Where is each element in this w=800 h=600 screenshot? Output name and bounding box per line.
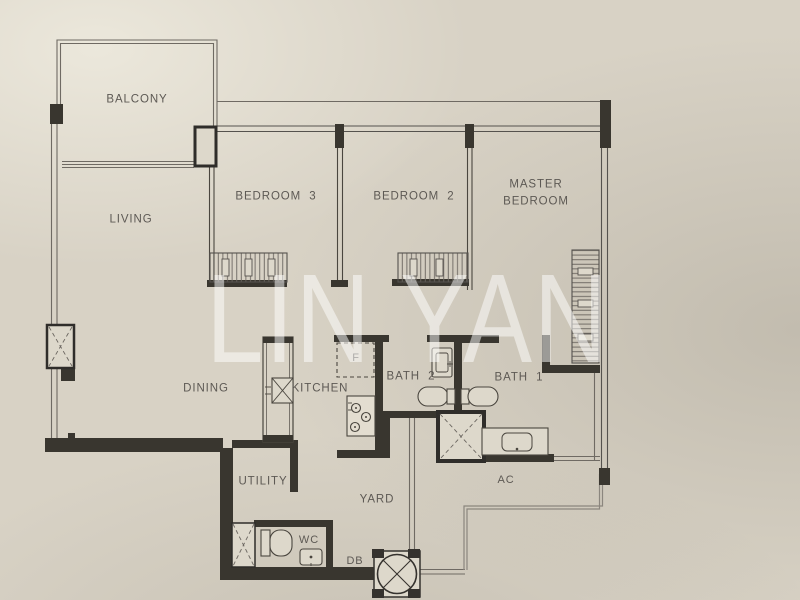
- db-column: [372, 549, 420, 598]
- room-label-kitchen: KITCHEN: [292, 381, 349, 398]
- floor-plan-drawing: [0, 0, 800, 600]
- room-label-balcony: BALCONY: [106, 92, 167, 109]
- thin-walls-and-windows: [52, 40, 608, 574]
- bath2-toilet: [418, 387, 455, 406]
- room-label-bedroom2: BEDROOM 2: [373, 189, 454, 206]
- bath1-toilet: [461, 387, 498, 406]
- wc-toilet: [261, 530, 292, 556]
- room-label-db: DB: [346, 554, 363, 570]
- service-shaft-wc: [232, 523, 255, 567]
- room-label-living: LIVING: [109, 212, 152, 229]
- room-label-utility: UTILITY: [238, 474, 287, 491]
- room-label-yard: YARD: [360, 492, 395, 509]
- room-label-ac: AC: [497, 473, 514, 489]
- room-label-bath1: BATH 1: [495, 370, 544, 387]
- wc-sink: [300, 549, 322, 566]
- wardrobe-bedroom2: [398, 253, 468, 282]
- ac-ledge-boundary: [464, 474, 603, 570]
- kitchen-sink: [265, 378, 293, 403]
- fridge-label: F: [352, 351, 360, 367]
- structural-column: [195, 127, 216, 166]
- floor-plan-page: BALCONY LIVING BEDROOM 3 BEDROOM 2 MASTE…: [0, 0, 800, 600]
- wardrobe-bedroom3: [210, 253, 287, 282]
- wardrobe-master-bedroom: [572, 250, 599, 363]
- bath1-vanity: [482, 428, 548, 455]
- room-label-wc: WC: [299, 533, 319, 549]
- thick-walls: [45, 100, 611, 580]
- room-label-bedroom3: BEDROOM 3: [235, 189, 316, 206]
- stove: [347, 396, 375, 436]
- service-shaft-baths: [438, 412, 484, 461]
- room-label-master-bedroom: MASTER BEDROOM: [503, 176, 569, 209]
- room-label-dining: DINING: [183, 381, 229, 398]
- room-label-bath2: BATH 2: [387, 369, 436, 386]
- ac-ledge-box-living: [47, 325, 74, 368]
